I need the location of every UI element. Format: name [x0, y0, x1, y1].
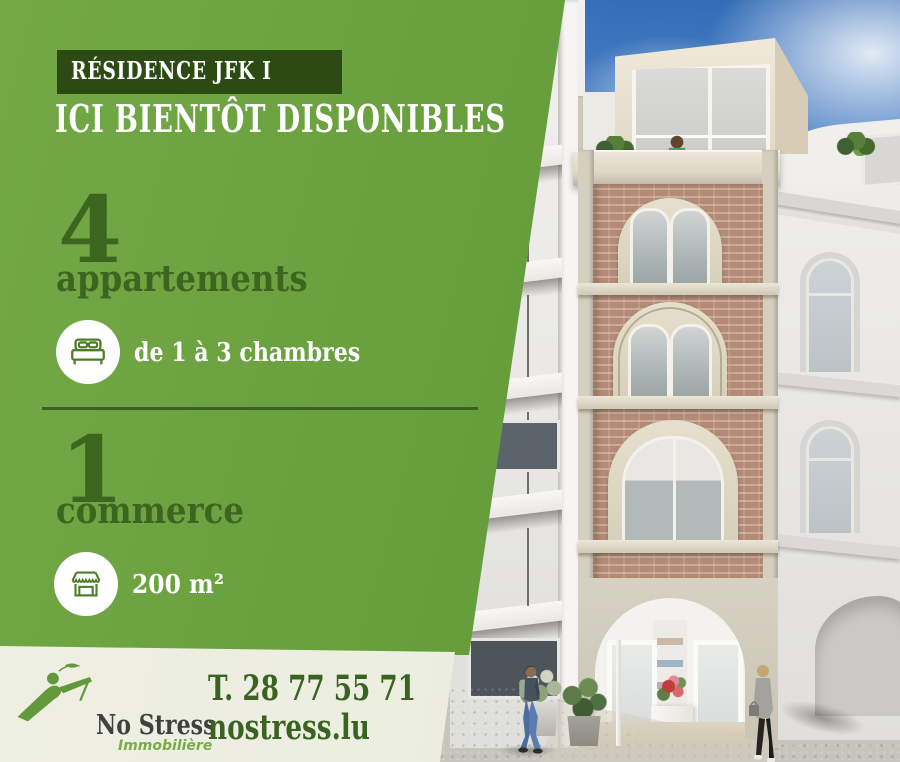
storefront-icon-circle	[54, 552, 118, 616]
right-building-arched-window	[800, 252, 860, 372]
plant-pot	[566, 716, 602, 746]
balcony-railing	[527, 295, 529, 377]
flower-bouquet	[655, 672, 689, 708]
window	[628, 324, 670, 405]
apartments-detail: de 1 à 3 chambres	[134, 338, 400, 368]
residence-badge: RÉSIDENCE JFK I	[57, 50, 342, 94]
brick-facade	[593, 184, 763, 582]
parapet-plant	[835, 132, 877, 156]
commerce-label: commerce	[56, 490, 265, 532]
terrace-parapet	[573, 150, 780, 186]
window	[670, 324, 712, 405]
residence-badge-label: RÉSIDENCE JFK I	[71, 56, 272, 85]
window	[622, 436, 724, 551]
headline: ICI BIENTÔT DISPONIBLES	[55, 96, 506, 141]
string-course	[578, 283, 778, 295]
string-course	[578, 396, 778, 409]
window	[670, 208, 710, 291]
storefront-icon	[65, 563, 107, 605]
divider-line	[42, 407, 478, 410]
arched-window-frame-floor3	[618, 198, 722, 288]
right-building-arched-window	[800, 420, 860, 533]
website-url: nostress.lu	[208, 707, 370, 748]
sign-post	[616, 640, 621, 746]
pedestrian-man	[511, 664, 549, 754]
window	[630, 208, 670, 291]
apartments-label: appartements	[56, 258, 336, 300]
brand-subtitle: Immobilière	[118, 738, 212, 754]
property-ad-poster: RÉSIDENCE JFK I ICI BIENTÔT DISPONIBLES …	[0, 0, 900, 762]
string-course	[578, 540, 778, 553]
balcony-railing	[527, 528, 529, 606]
bed-icon	[67, 331, 109, 373]
pedestrian-woman	[746, 662, 780, 762]
commerce-detail: 200 m²	[132, 570, 234, 600]
arched-window-frame-floor2	[613, 302, 727, 402]
arched-window-frame-floor1	[608, 420, 738, 548]
phone-number: T. 28 77 55 71	[208, 668, 416, 709]
penthouse-window	[632, 64, 770, 162]
bed-icon-circle	[56, 320, 120, 384]
